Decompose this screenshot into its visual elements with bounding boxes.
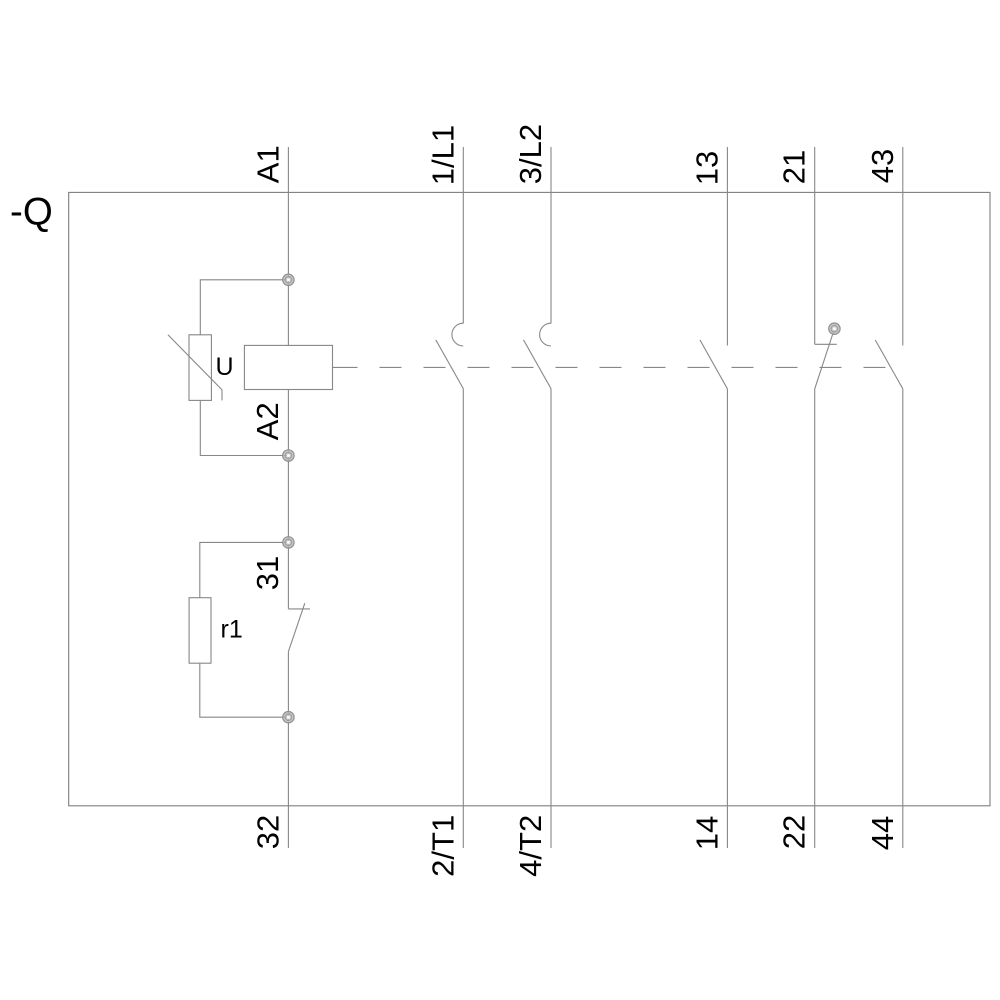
svg-text:3/L2: 3/L2	[513, 124, 548, 184]
svg-text:43: 43	[865, 149, 900, 183]
svg-text:21: 21	[777, 150, 812, 184]
svg-text:13: 13	[689, 151, 724, 185]
svg-text:-Q: -Q	[10, 191, 53, 234]
svg-text:r1: r1	[221, 616, 243, 644]
svg-text:32: 32	[250, 815, 285, 849]
svg-text:22: 22	[777, 815, 812, 849]
svg-text:U: U	[216, 353, 234, 381]
svg-text:44: 44	[865, 816, 900, 850]
svg-text:4/T2: 4/T2	[513, 815, 548, 877]
svg-text:31: 31	[250, 556, 285, 590]
svg-text:2/T1: 2/T1	[425, 815, 460, 877]
svg-text:A2: A2	[250, 402, 285, 440]
svg-text:1/L1: 1/L1	[425, 125, 460, 185]
svg-text:A1: A1	[250, 145, 285, 183]
svg-text:14: 14	[689, 816, 724, 850]
